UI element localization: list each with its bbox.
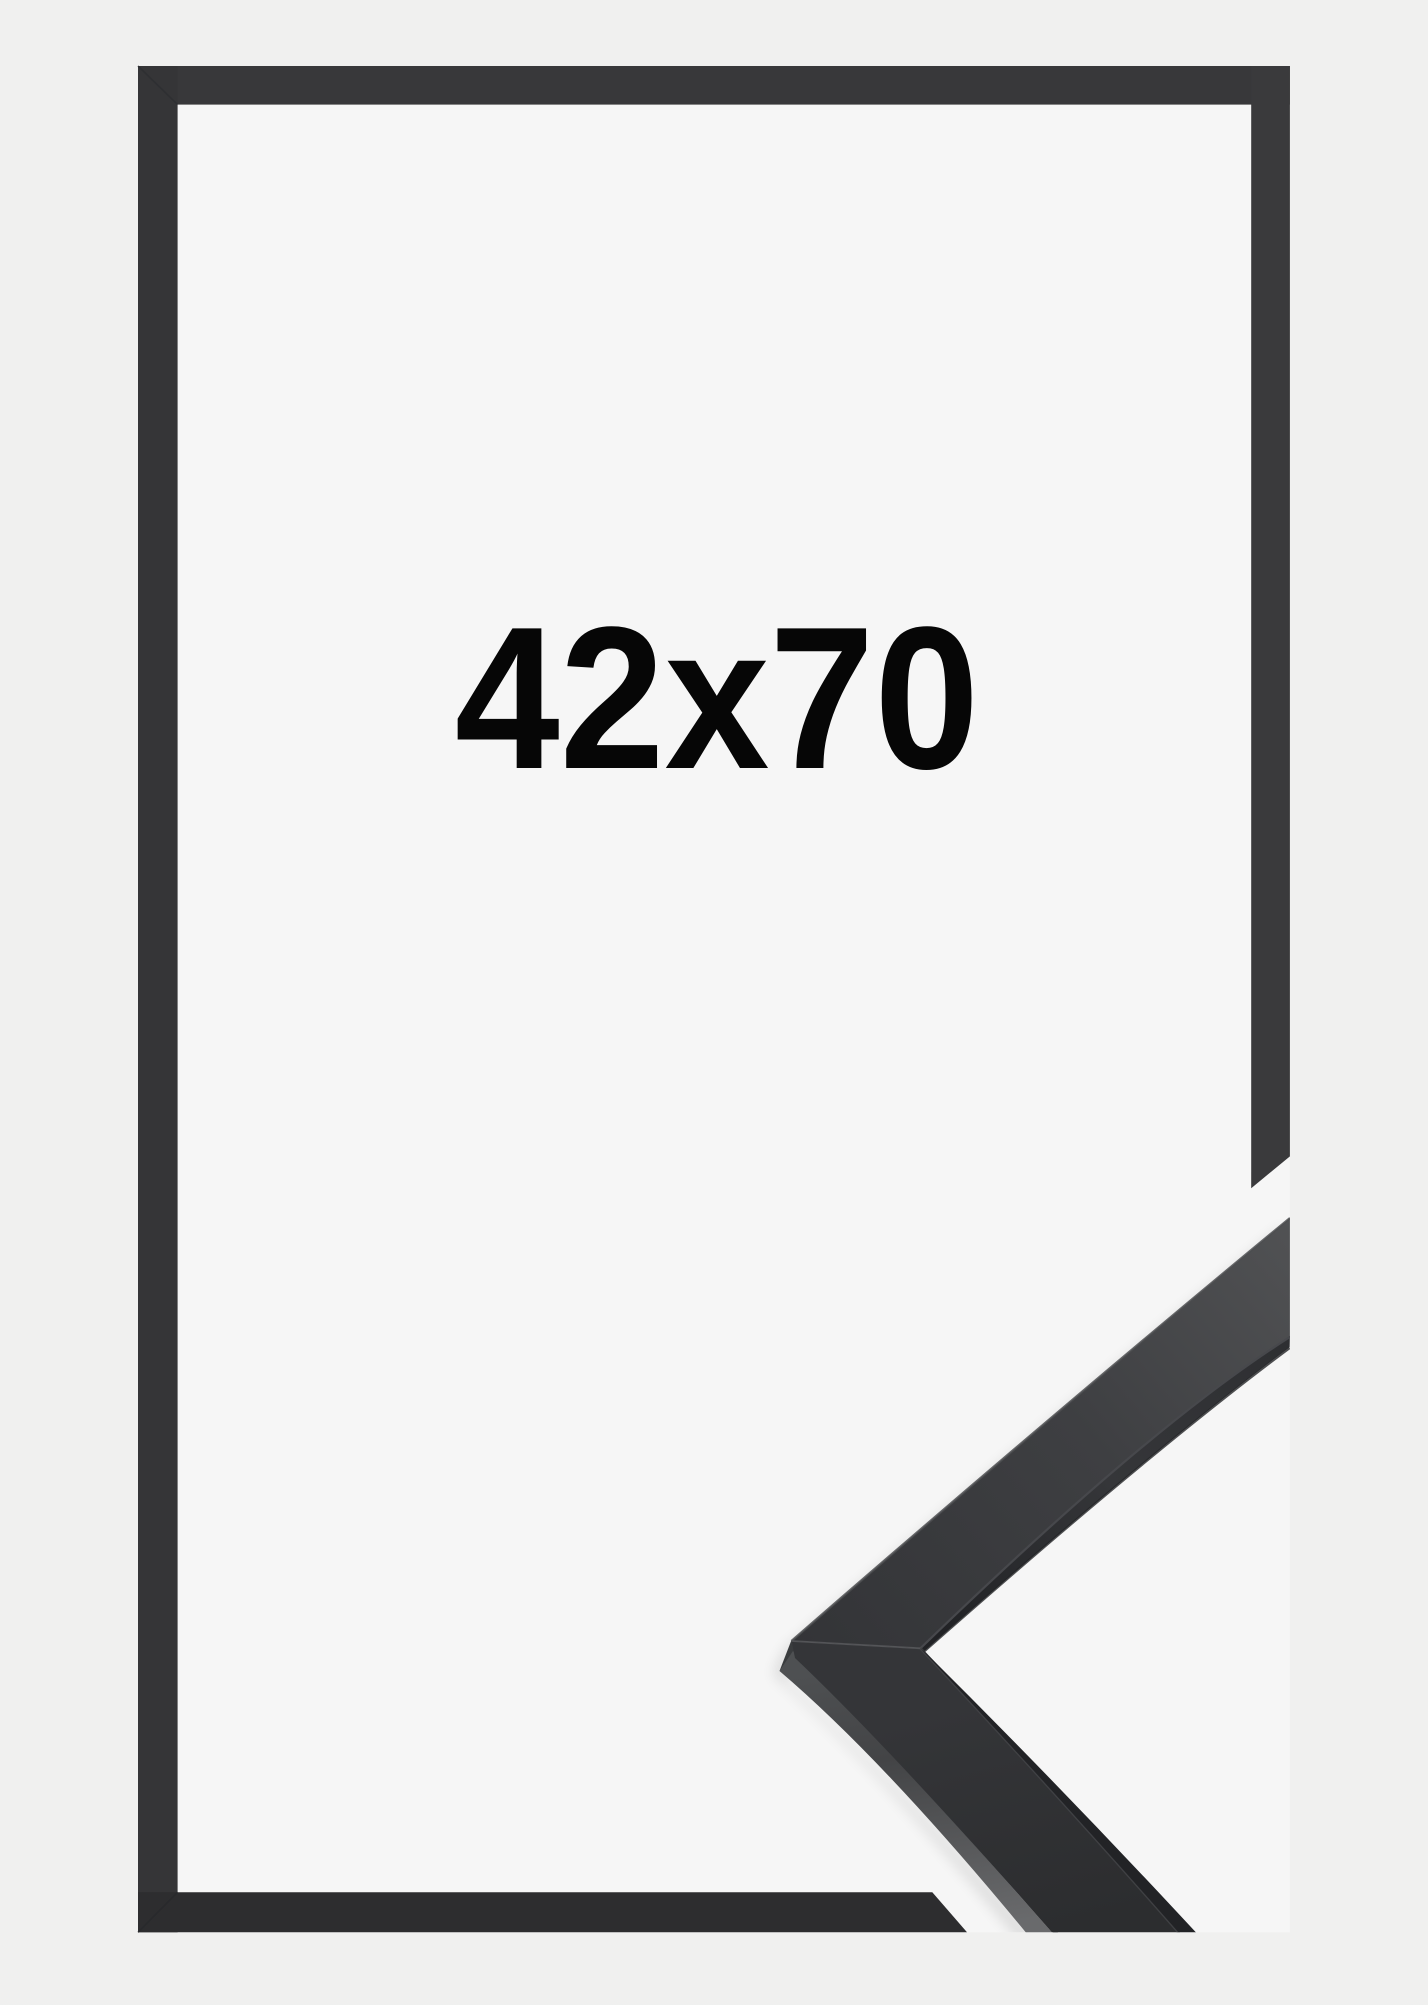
svg-text:42x70: 42x70 [455,585,979,812]
